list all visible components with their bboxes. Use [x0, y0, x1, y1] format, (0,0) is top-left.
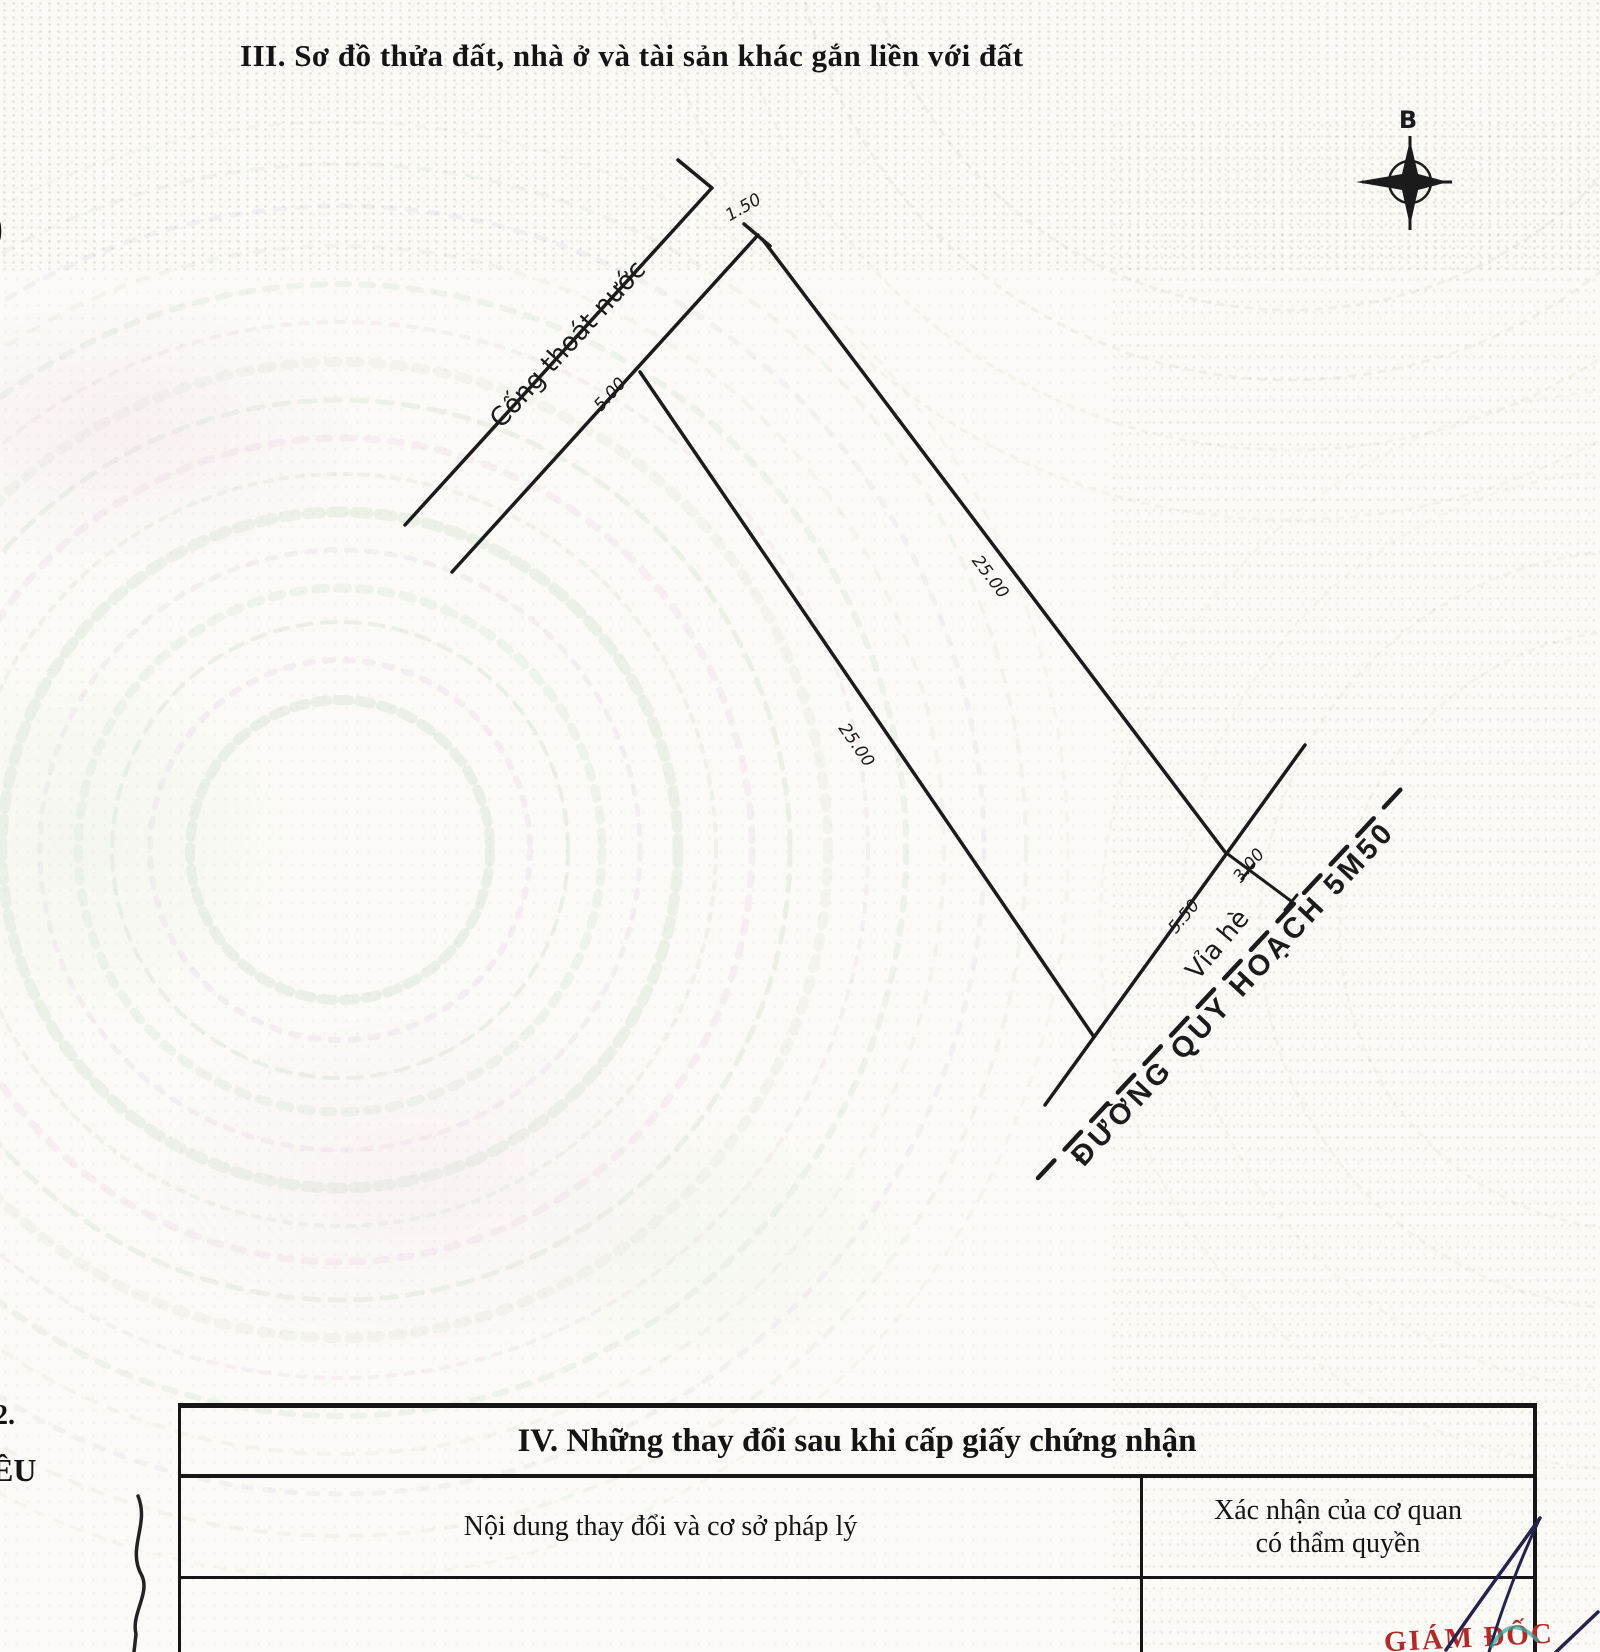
column-header-confirmation-line2: có thẩm quyền [1256, 1527, 1421, 1560]
edge-fragment-paren: ) [0, 200, 3, 253]
column-header-confirmation: Xác nhận của cơ quan có thẩm quyền [1143, 1478, 1533, 1576]
certificate-page: III. Sơ đồ thửa đất, nhà ở và tài sản kh… [0, 0, 1600, 1652]
column-header-confirmation-line1: Xác nhận của cơ quan [1214, 1494, 1462, 1527]
section4-header-row: Nội dung thay đổi và cơ sở pháp lý Xác n… [181, 1478, 1533, 1579]
section4-title: IV. Những thay đổi sau khi cấp giấy chứn… [181, 1408, 1533, 1478]
section3-title: III. Sơ đồ thửa đất, nhà ở và tài sản kh… [240, 38, 1024, 74]
column-header-content: Nội dung thay đổi và cơ sở pháp lý [181, 1478, 1143, 1576]
section4-table: IV. Những thay đổi sau khi cấp giấy chứn… [178, 1403, 1537, 1652]
edge-fragment-item-number: 2. [0, 1400, 15, 1432]
empty-cell-content [181, 1579, 1143, 1652]
edge-fragment-word: ỀU [0, 1452, 36, 1489]
section4-empty-row [181, 1579, 1533, 1652]
